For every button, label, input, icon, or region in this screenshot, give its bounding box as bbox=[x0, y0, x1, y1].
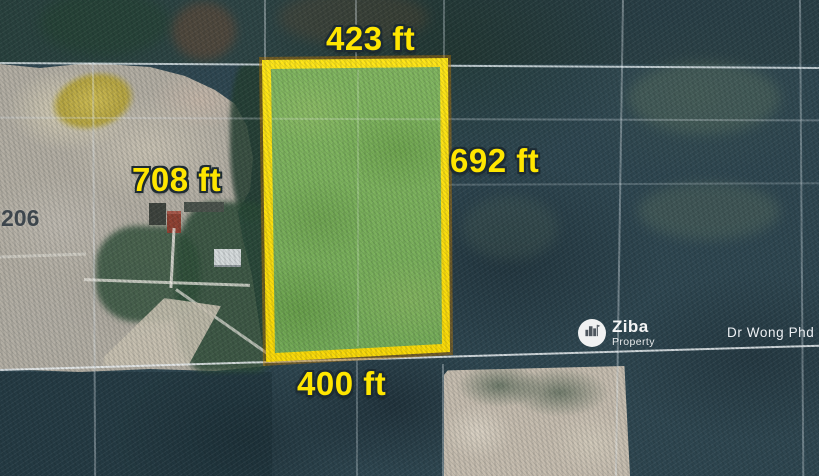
brown-trees-patch bbox=[172, 2, 236, 60]
dimension-label-left: 708 ft bbox=[132, 163, 221, 196]
credit-label: Dr Wong Phd bbox=[727, 325, 814, 340]
watermark: Ziba Property bbox=[578, 318, 655, 348]
buildings-icon bbox=[584, 322, 601, 344]
building bbox=[184, 202, 224, 212]
white-building bbox=[214, 249, 241, 267]
watermark-brand-sub: Property bbox=[612, 337, 655, 348]
forest-area-bottom-left bbox=[0, 372, 272, 476]
satellite-map: 423 ft 708 ft 692 ft 400 ft 206 Ziba P bbox=[0, 0, 819, 476]
survey-line-vertical bbox=[443, 0, 445, 60]
watermark-text: Ziba Property bbox=[612, 318, 655, 348]
dimension-label-top: 423 ft bbox=[326, 22, 415, 55]
dimension-label-right: 692 ft bbox=[450, 144, 539, 177]
survey-line-inside-parcel bbox=[357, 70, 359, 346]
survey-line-horizontal bbox=[448, 182, 819, 186]
dimension-label-bottom: 400 ft bbox=[297, 367, 386, 400]
vegetation-patch bbox=[638, 182, 780, 240]
vegetation-patch bbox=[628, 62, 780, 134]
watermark-logo-circle bbox=[578, 319, 606, 347]
cleared-patch-bottom bbox=[444, 366, 630, 476]
building bbox=[149, 203, 166, 225]
survey-line-vertical bbox=[264, 0, 266, 62]
vegetation-patch bbox=[462, 196, 558, 260]
watermark-brand: Ziba bbox=[612, 318, 655, 335]
survey-line-vertical bbox=[442, 364, 444, 476]
survey-line-vertical bbox=[799, 0, 804, 476]
lot-number-label: 206 bbox=[1, 205, 39, 232]
